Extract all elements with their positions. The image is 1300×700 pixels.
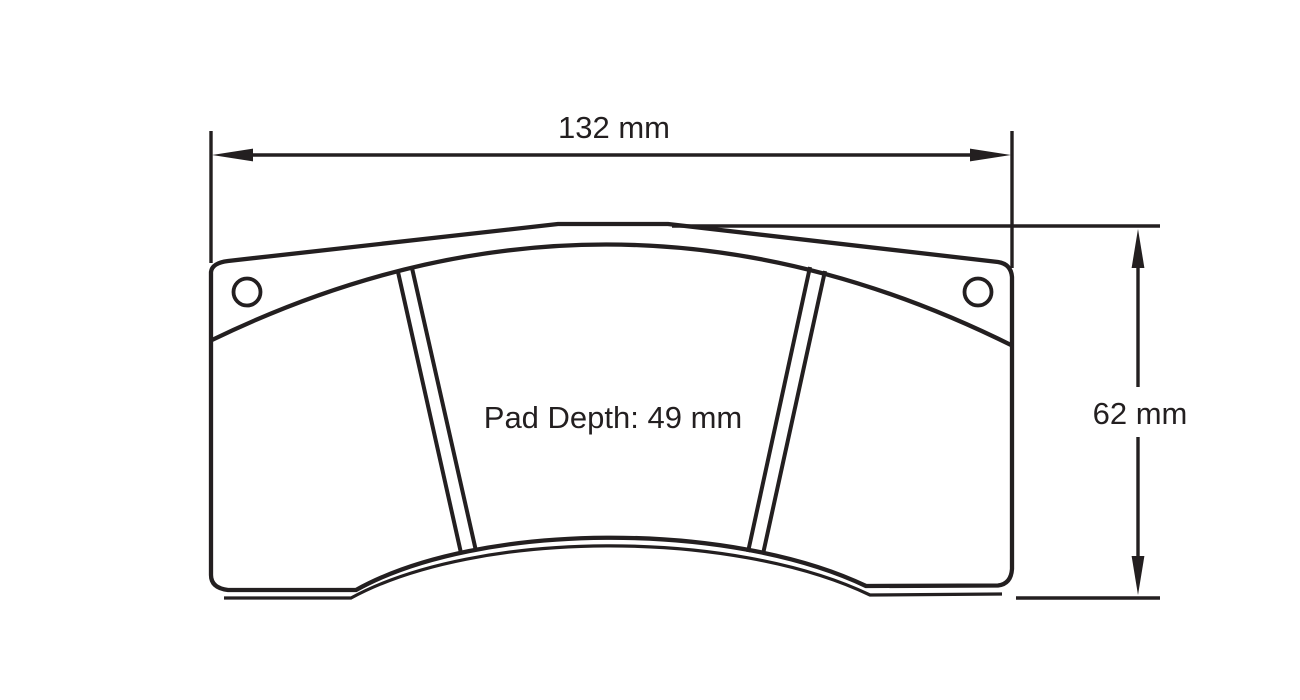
right-slot-line-2 [763,271,825,554]
brake-pad-dimension-drawing: 132 mm 62 mm Pad Depth: 49 mm [0,0,1300,700]
left-rivet-hole [234,279,261,306]
height-arrowhead-bottom-icon [1132,556,1145,595]
left-slot-line-2 [412,268,476,551]
left-slot-line-1 [398,272,461,553]
width-arrowhead-left-icon [212,149,253,162]
height-dimension-label: 62 mm [1093,396,1188,431]
pad-depth-label: Pad Depth: 49 mm [484,400,742,435]
right-rivet-hole [965,279,992,306]
friction-material-top-edge [212,244,1013,346]
width-dimension-label: 132 mm [558,110,670,145]
height-arrowhead-top-icon [1132,229,1145,268]
drawing-svg: 132 mm 62 mm Pad Depth: 49 mm [0,0,1300,700]
right-slot-line-1 [748,267,810,552]
width-arrowhead-right-icon [970,149,1011,162]
